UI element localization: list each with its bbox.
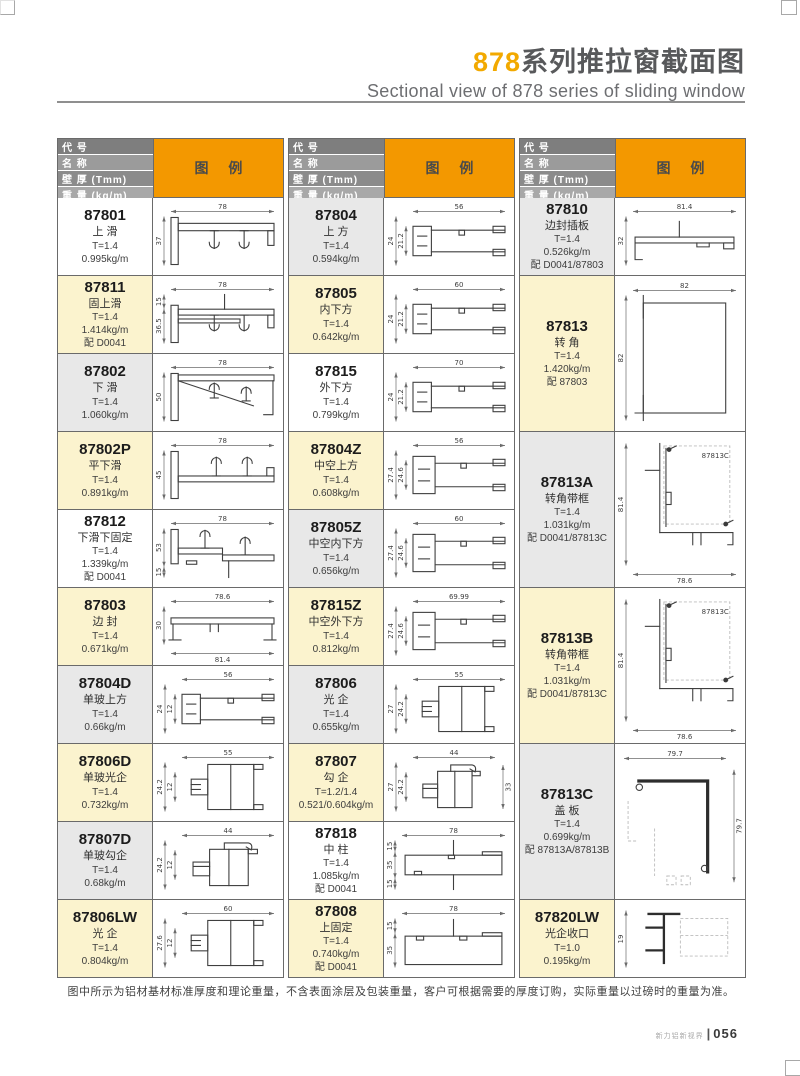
svg-text:15: 15	[386, 842, 394, 851]
profile-drawing: 7837	[153, 198, 283, 275]
svg-text:82: 82	[617, 354, 625, 363]
profile-drawing: 78153515	[384, 822, 514, 899]
profile-name: 中空外下方	[309, 616, 364, 630]
profile-code: 87808	[315, 903, 357, 921]
profile-weight: 0.526kg/m	[544, 246, 591, 259]
svg-text:45: 45	[155, 471, 163, 480]
profile-weight: 0.608kg/m	[313, 487, 360, 500]
profile-code: 87804Z	[311, 441, 362, 459]
profile-row-87803: 87803边 封T=1.40.671kg/m78.681.430	[58, 587, 283, 665]
svg-text:60: 60	[455, 281, 464, 289]
profile-name: 单玻上方	[83, 694, 127, 708]
svg-text:24: 24	[387, 236, 395, 245]
profile-name: 外下方	[320, 382, 353, 396]
profile-info: 87815Z中空外下方T=1.40.812kg/m	[289, 588, 384, 665]
profile-drawing: 79.779.7	[615, 744, 745, 899]
profile-match: 配 D0041	[84, 337, 126, 350]
profile-match: 配 D0041	[315, 883, 357, 896]
header-thickness-label: 壁 厚 (Tmm)	[289, 171, 384, 186]
profile-drawing: 6027.612	[153, 900, 283, 977]
profile-weight: 0.995kg/m	[82, 253, 129, 266]
svg-text:81.4: 81.4	[677, 203, 693, 211]
profile-name: 转角带框	[545, 649, 589, 663]
profile-thickness: T=1.4	[554, 818, 580, 831]
profile-row-87806LW: 87806LW光 企T=1.40.804kg/m6027.612	[58, 899, 283, 977]
profile-weight: 0.68kg/m	[84, 877, 125, 890]
profile-drawing: 781536.5	[153, 276, 283, 353]
profile-name: 下 滑	[92, 382, 117, 396]
profile-code: 87802P	[79, 441, 131, 459]
profile-weight: 0.699kg/m	[544, 831, 591, 844]
svg-text:36.5: 36.5	[155, 318, 163, 334]
svg-text:37: 37	[155, 237, 163, 246]
profile-code: 87820LW	[535, 909, 599, 927]
profile-name: 转 角	[554, 337, 579, 351]
svg-text:78: 78	[449, 905, 458, 913]
svg-text:78: 78	[218, 281, 227, 289]
svg-text:15: 15	[386, 921, 394, 930]
svg-text:12: 12	[166, 939, 174, 948]
table-header: 代 号 名 称 壁 厚 (Tmm) 重 量 (kg/m) 图 例	[289, 139, 514, 198]
profile-row-87805: 87805内下方T=1.40.642kg/m602421.2	[289, 275, 514, 353]
svg-text:21.2: 21.2	[397, 311, 405, 327]
page-title-text: 系列推拉窗截面图	[521, 47, 745, 77]
profile-info: 87815外下方T=1.40.799kg/m	[289, 354, 384, 431]
profile-name: 单玻光企	[83, 772, 127, 786]
profile-row-87806D: 87806D单玻光企T=1.40.732kg/m5524.212	[58, 743, 283, 821]
profile-name: 中 柱	[323, 844, 348, 858]
profile-row-87813A: 87813A转角带框T=1.41.031kg/m配 D0041/87813C78…	[520, 431, 745, 587]
profile-row-87802P: 87802P平下滑T=1.40.891kg/m7845	[58, 431, 283, 509]
svg-text:15: 15	[155, 568, 163, 577]
header-thickness-label: 壁 厚 (Tmm)	[58, 171, 153, 186]
profile-info: 87813C盖 板T=1.40.699kg/m配 87813A/87813B	[520, 744, 615, 899]
profile-name: 光 企	[92, 928, 117, 942]
profile-name: 上 方	[323, 226, 348, 240]
profile-code: 87813A	[541, 474, 594, 492]
profile-match: 配 D0041/87803	[531, 259, 604, 272]
svg-text:24.6: 24.6	[397, 467, 405, 483]
profile-weight: 0.891kg/m	[82, 487, 129, 500]
svg-text:78: 78	[218, 359, 227, 367]
profile-code: 87805	[315, 285, 357, 303]
profile-weight: 1.414kg/m	[82, 324, 129, 337]
header-name-label: 名 称	[520, 155, 615, 170]
profile-info: 87813B转角带框T=1.41.031kg/m配 D0041/87813C	[520, 588, 615, 743]
profile-drawing: 562421.2	[384, 198, 514, 275]
profile-weight: 0.732kg/m	[82, 799, 129, 812]
profile-code: 87806D	[79, 753, 132, 771]
svg-text:55: 55	[224, 749, 233, 757]
profile-info: 87806光 企T=1.40.655kg/m	[289, 666, 384, 743]
crop-mark-top-left	[0, 0, 15, 15]
svg-text:81.4: 81.4	[215, 656, 231, 664]
svg-text:15: 15	[155, 297, 163, 306]
svg-text:81.4: 81.4	[617, 496, 625, 512]
profile-info: 87802下 滑T=1.41.060kg/m	[58, 354, 153, 431]
svg-text:79.7: 79.7	[667, 750, 683, 758]
profile-thickness: T=1.4	[92, 942, 118, 955]
profile-column-2: 代 号 名 称 壁 厚 (Tmm) 重 量 (kg/m) 图 例 87804上 …	[288, 138, 515, 978]
profile-thickness: T=1.4	[92, 545, 118, 558]
svg-text:12: 12	[166, 783, 174, 792]
profile-weight: 0.671kg/m	[82, 643, 129, 656]
profile-name: 盖 板	[554, 805, 579, 819]
profile-match: 配 D0041/87813C	[527, 688, 607, 701]
svg-text:78: 78	[218, 203, 227, 211]
profile-code: 87807	[315, 753, 357, 771]
svg-text:27.6: 27.6	[156, 935, 164, 951]
profile-rows: 87801上 滑T=1.40.995kg/m783787811固上滑T=1.41…	[58, 198, 283, 977]
svg-text:21.2: 21.2	[397, 233, 405, 249]
svg-text:27: 27	[387, 783, 395, 792]
page-header: 878系列推拉窗截面图 Sectional view of 878 series…	[367, 48, 745, 102]
profile-code: 87806	[315, 675, 357, 693]
svg-text:78: 78	[218, 515, 227, 523]
svg-text:24.2: 24.2	[397, 701, 405, 717]
profile-thickness: T=1.4	[323, 318, 349, 331]
svg-text:27.4: 27.4	[387, 623, 395, 639]
profile-weight: 0.642kg/m	[313, 331, 360, 344]
profile-name: 中空内下方	[309, 538, 364, 552]
header-name-label: 名 称	[58, 155, 153, 170]
header-legend-cell: 图 例	[616, 139, 745, 197]
svg-text:69.99: 69.99	[449, 593, 469, 601]
profile-thickness: T=1.4	[323, 857, 349, 870]
profile-code: 87818	[315, 825, 357, 843]
profile-row-87813: 87813转 角T=1.41.420kg/m配 878038282	[520, 275, 745, 431]
profile-info: 87812下滑下固定T=1.41.339kg/m配 D0041	[58, 510, 153, 587]
svg-text:44: 44	[450, 749, 459, 757]
profile-drawing: 81.432	[615, 198, 745, 275]
header-labels: 代 号 名 称 壁 厚 (Tmm) 重 量 (kg/m)	[520, 139, 616, 197]
profile-weight: 1.339kg/m	[82, 558, 129, 571]
svg-text:12: 12	[166, 705, 174, 714]
svg-text:56: 56	[455, 437, 464, 445]
profile-drawing: 552724.2	[384, 666, 514, 743]
svg-text:30: 30	[155, 621, 163, 630]
header-code-label: 代 号	[289, 139, 384, 154]
profile-info: 87804Z中空上方T=1.40.608kg/m	[289, 432, 384, 509]
profile-thickness: T=1.4	[323, 935, 349, 948]
svg-text:78.6: 78.6	[677, 733, 693, 741]
profile-thickness: T=1.4	[323, 396, 349, 409]
profile-info: 87804D单玻上方T=1.40.66kg/m	[58, 666, 153, 743]
profile-drawing: 8282	[615, 276, 745, 431]
profile-info: 87813A转角带框T=1.41.031kg/m配 D0041/87813C	[520, 432, 615, 587]
profile-name: 边封插板	[545, 220, 589, 234]
page-footer: 新力铝新视界 | 056	[656, 1026, 738, 1041]
profile-drawing: 785315	[153, 510, 283, 587]
profile-match: 配 D0041	[84, 571, 126, 584]
profile-code: 87815Z	[311, 597, 362, 615]
profile-name: 平下滑	[89, 460, 122, 474]
profile-name: 光企收口	[545, 928, 589, 942]
profile-name: 光 企	[323, 694, 348, 708]
profile-drawing: 4424.212	[153, 822, 283, 899]
profile-rows: 87804上 方T=1.40.594kg/m562421.287805内下方T=…	[289, 198, 514, 977]
footnote: 图中所示为铝材基材标准厚度和理论重量，不含表面涂层及包装重量，客户可根据需要的厚…	[57, 983, 745, 999]
profile-drawing: 78.681.430	[153, 588, 283, 665]
svg-text:33: 33	[505, 783, 513, 792]
svg-text:35: 35	[386, 946, 394, 955]
profile-code: 87811	[85, 279, 126, 297]
profile-thickness: T=1.4	[92, 630, 118, 643]
profile-row-87812: 87812下滑下固定T=1.41.339kg/m配 D0041785315	[58, 509, 283, 587]
profile-row-87807: 87807勾 企T=1.2/1.40.521/0.604kg/m44332724…	[289, 743, 514, 821]
profile-drawing: 702421.2	[384, 354, 514, 431]
profile-info: 87811固上滑T=1.41.414kg/m配 D0041	[58, 276, 153, 353]
profile-info: 87801上 滑T=1.40.995kg/m	[58, 198, 153, 275]
svg-text:27.4: 27.4	[387, 545, 395, 561]
profile-info: 87813转 角T=1.41.420kg/m配 87803	[520, 276, 615, 431]
svg-text:21.2: 21.2	[397, 389, 405, 405]
svg-text:81.4: 81.4	[617, 652, 625, 668]
profile-code: 87804	[315, 207, 357, 225]
svg-text:24.2: 24.2	[156, 857, 164, 873]
profile-row-87815Z: 87815Z中空外下方T=1.40.812kg/m69.9927.424.6	[289, 587, 514, 665]
table-header: 代 号 名 称 壁 厚 (Tmm) 重 量 (kg/m) 图 例	[520, 139, 745, 198]
profile-weight: 0.656kg/m	[313, 565, 360, 578]
page-number: 056	[713, 1026, 738, 1041]
profile-thickness: T=1.4	[323, 708, 349, 721]
profile-match: 配 87803	[547, 376, 588, 389]
profile-info: 87805Z中空内下方T=1.40.656kg/m	[289, 510, 384, 587]
crop-mark-top-right	[781, 0, 797, 15]
profile-row-87811: 87811固上滑T=1.41.414kg/m配 D0041781536.5	[58, 275, 283, 353]
profile-drawing: 78.681.487813C	[615, 432, 745, 587]
profile-row-87804D: 87804D单玻上方T=1.40.66kg/m562412	[58, 665, 283, 743]
profile-info: 87806LW光 企T=1.40.804kg/m	[58, 900, 153, 977]
profile-rows: 87810边封插板T=1.40.526kg/m配 D0041/8780381.4…	[520, 198, 745, 977]
profile-thickness: T=1.4	[92, 311, 118, 324]
svg-text:24.6: 24.6	[397, 623, 405, 639]
profile-weight: 1.060kg/m	[82, 409, 129, 422]
header-code-label: 代 号	[520, 139, 615, 154]
profile-thickness: T=1.4	[92, 474, 118, 487]
profile-weight: 0.521/0.604kg/m	[299, 799, 374, 812]
svg-text:32: 32	[617, 237, 625, 246]
svg-text:60: 60	[224, 905, 233, 913]
profile-weight: 0.655kg/m	[313, 721, 360, 734]
profile-info: 87808上固定T=1.40.740kg/m配 D0041	[289, 900, 384, 977]
profile-info: 87804上 方T=1.40.594kg/m	[289, 198, 384, 275]
profile-code: 87804D	[79, 675, 132, 693]
profile-info: 87806D单玻光企T=1.40.732kg/m	[58, 744, 153, 821]
profile-drawing: 781535	[384, 900, 514, 977]
svg-text:56: 56	[224, 671, 233, 679]
profile-thickness: T=1.4	[554, 506, 580, 519]
profile-name: 上固定	[320, 922, 353, 936]
svg-text:50: 50	[155, 393, 163, 402]
profile-name: 中空上方	[314, 460, 358, 474]
profile-info: 87807D单玻勾企T=1.40.68kg/m	[58, 822, 153, 899]
svg-text:24: 24	[387, 392, 395, 401]
svg-text:24.2: 24.2	[156, 779, 164, 795]
profile-name: 单玻勾企	[83, 850, 127, 864]
svg-text:19: 19	[617, 935, 625, 944]
profile-row-87818: 87818中 柱T=1.41.085kg/m配 D004178153515	[289, 821, 514, 899]
header-name-label: 名 称	[289, 155, 384, 170]
profile-drawing: 602421.2	[384, 276, 514, 353]
header-legend-cell: 图 例	[385, 139, 514, 197]
svg-text:78: 78	[449, 827, 458, 835]
profile-info: 87802P平下滑T=1.40.891kg/m	[58, 432, 153, 509]
svg-text:78: 78	[218, 437, 227, 445]
profile-code: 87813B	[541, 630, 594, 648]
page-title-series-number: 878	[473, 47, 521, 77]
svg-text:70: 70	[455, 359, 464, 367]
profile-info: 87820LW光企收口T=1.00.195kg/m	[520, 900, 615, 977]
svg-text:60: 60	[455, 515, 464, 523]
profile-weight: 0.799kg/m	[313, 409, 360, 422]
profile-weight: 1.031kg/m	[544, 675, 591, 688]
profile-name: 转角带框	[545, 493, 589, 507]
profile-row-87802: 87802下 滑T=1.41.060kg/m7850	[58, 353, 283, 431]
profile-drawing: 69.9927.424.6	[384, 588, 514, 665]
profile-thickness: T=1.4	[92, 396, 118, 409]
profile-thickness: T=1.4	[92, 864, 118, 877]
svg-text:27.4: 27.4	[387, 467, 395, 483]
profile-thickness: T=1.2/1.4	[315, 786, 358, 799]
profile-weight: 1.420kg/m	[544, 363, 591, 376]
profile-weight: 1.085kg/m	[313, 870, 360, 883]
header-legend-cell: 图 例	[154, 139, 283, 197]
profile-thickness: T=1.4	[323, 630, 349, 643]
brand-slogan: 新力铝新视界	[656, 1031, 704, 1041]
header-divider	[57, 101, 745, 103]
svg-text:35: 35	[386, 861, 394, 870]
footer-separator: |	[707, 1026, 711, 1041]
header-code-label: 代 号	[58, 139, 153, 154]
page-title: 878系列推拉窗截面图	[367, 48, 745, 78]
svg-text:24: 24	[156, 704, 164, 713]
svg-text:24.6: 24.6	[397, 545, 405, 561]
profile-drawing: 7845	[153, 432, 283, 509]
profile-drawing: 5627.424.6	[384, 432, 514, 509]
svg-text:87813C: 87813C	[702, 608, 729, 616]
profile-weight: 1.031kg/m	[544, 519, 591, 532]
profile-column-1: 代 号 名 称 壁 厚 (Tmm) 重 量 (kg/m) 图 例 87801上 …	[57, 138, 284, 978]
profile-thickness: T=1.4	[92, 786, 118, 799]
profile-weight: 0.740kg/m	[313, 948, 360, 961]
table-header: 代 号 名 称 壁 厚 (Tmm) 重 量 (kg/m) 图 例	[58, 139, 283, 198]
profile-name: 下滑下固定	[78, 532, 133, 546]
profile-drawing: 5524.212	[153, 744, 283, 821]
profile-info: 87810边封插板T=1.40.526kg/m配 D0041/87803	[520, 198, 615, 275]
crop-mark-bottom-right	[785, 1060, 800, 1076]
profile-match: 配 D0041	[315, 961, 357, 974]
profile-name: 上 滑	[92, 226, 117, 240]
svg-text:87813C: 87813C	[702, 452, 729, 460]
profile-row-87808: 87808上固定T=1.40.740kg/m配 D0041781535	[289, 899, 514, 977]
profile-drawing: 78.681.487813C	[615, 588, 745, 743]
profile-code: 87813C	[541, 786, 594, 804]
profile-thickness: T=1.4	[92, 240, 118, 253]
profile-thickness: T=1.4	[323, 474, 349, 487]
svg-text:12: 12	[166, 861, 174, 870]
svg-text:27: 27	[387, 705, 395, 714]
svg-text:24.2: 24.2	[397, 779, 405, 795]
profile-drawing: 7850	[153, 354, 283, 431]
profile-code: 87803	[84, 597, 126, 615]
svg-text:44: 44	[224, 827, 233, 835]
profiles-table: 代 号 名 称 壁 厚 (Tmm) 重 量 (kg/m) 图 例 87801上 …	[57, 138, 747, 978]
svg-text:78.6: 78.6	[215, 593, 231, 601]
profile-row-87801: 87801上 滑T=1.40.995kg/m7837	[58, 198, 283, 275]
svg-text:53: 53	[155, 543, 163, 552]
svg-text:79.7: 79.7	[736, 818, 744, 834]
profile-weight: 0.195kg/m	[544, 955, 591, 968]
profile-weight: 0.812kg/m	[313, 643, 360, 656]
svg-text:15: 15	[386, 879, 394, 888]
header-thickness-label: 壁 厚 (Tmm)	[520, 171, 615, 186]
profile-info: 87818中 柱T=1.41.085kg/m配 D0041	[289, 822, 384, 899]
svg-text:82: 82	[680, 282, 689, 290]
svg-text:56: 56	[455, 203, 464, 211]
profile-weight: 0.66kg/m	[84, 721, 125, 734]
svg-text:78.6: 78.6	[677, 577, 693, 585]
profile-row-87813C: 87813C盖 板T=1.40.699kg/m配 87813A/87813B79…	[520, 743, 745, 899]
profile-thickness: T=1.4	[554, 662, 580, 675]
profile-drawing: 6027.424.6	[384, 510, 514, 587]
profile-drawing: 562412	[153, 666, 283, 743]
profile-match: 配 87813A/87813B	[525, 844, 610, 857]
profile-thickness: T=1.4	[92, 708, 118, 721]
profile-weight: 0.594kg/m	[313, 253, 360, 266]
profile-thickness: T=1.4	[554, 350, 580, 363]
profile-row-87806: 87806光 企T=1.40.655kg/m552724.2	[289, 665, 514, 743]
profile-column-3: 代 号 名 称 壁 厚 (Tmm) 重 量 (kg/m) 图 例 87810边封…	[519, 138, 746, 978]
profile-row-87810: 87810边封插板T=1.40.526kg/m配 D0041/8780381.4…	[520, 198, 745, 275]
profile-code: 87801	[84, 207, 126, 225]
profile-info: 87807勾 企T=1.2/1.40.521/0.604kg/m	[289, 744, 384, 821]
profile-thickness: T=1.0	[554, 942, 580, 955]
profile-match: 配 D0041/87813C	[527, 532, 607, 545]
profile-code: 87805Z	[311, 519, 362, 537]
profile-code: 87802	[84, 363, 126, 381]
profile-thickness: T=1.4	[323, 552, 349, 565]
profile-code: 87813	[546, 318, 588, 336]
header-labels: 代 号 名 称 壁 厚 (Tmm) 重 量 (kg/m)	[289, 139, 385, 197]
page-subtitle: Sectional view of 878 series of sliding …	[367, 81, 745, 102]
svg-text:24: 24	[387, 314, 395, 323]
profile-name: 固上滑	[89, 298, 122, 312]
profile-row-87805Z: 87805Z中空内下方T=1.40.656kg/m6027.424.6	[289, 509, 514, 587]
profile-thickness: T=1.4	[554, 233, 580, 246]
profile-code: 87810	[546, 201, 588, 219]
header-labels: 代 号 名 称 壁 厚 (Tmm) 重 量 (kg/m)	[58, 139, 154, 197]
profile-thickness: T=1.4	[323, 240, 349, 253]
profile-code: 87806LW	[73, 909, 137, 927]
profile-drawing: 19	[615, 900, 745, 977]
svg-text:55: 55	[455, 671, 464, 679]
profile-row-87807D: 87807D单玻勾企T=1.40.68kg/m4424.212	[58, 821, 283, 899]
profile-name: 勾 企	[323, 772, 348, 786]
profile-info: 87803边 封T=1.40.671kg/m	[58, 588, 153, 665]
profile-name: 边 封	[92, 616, 117, 630]
profile-row-87813B: 87813B转角带框T=1.41.031kg/m配 D0041/87813C78…	[520, 587, 745, 743]
profile-code: 87807D	[79, 831, 132, 849]
profile-code: 87812	[84, 513, 126, 531]
profile-info: 87805内下方T=1.40.642kg/m	[289, 276, 384, 353]
profile-code: 87815	[315, 363, 357, 381]
profile-row-87804: 87804上 方T=1.40.594kg/m562421.2	[289, 198, 514, 275]
profile-weight: 0.804kg/m	[82, 955, 129, 968]
profile-row-87820LW: 87820LW光企收口T=1.00.195kg/m19	[520, 899, 745, 977]
profile-row-87815: 87815外下方T=1.40.799kg/m702421.2	[289, 353, 514, 431]
profile-name: 内下方	[320, 304, 353, 318]
